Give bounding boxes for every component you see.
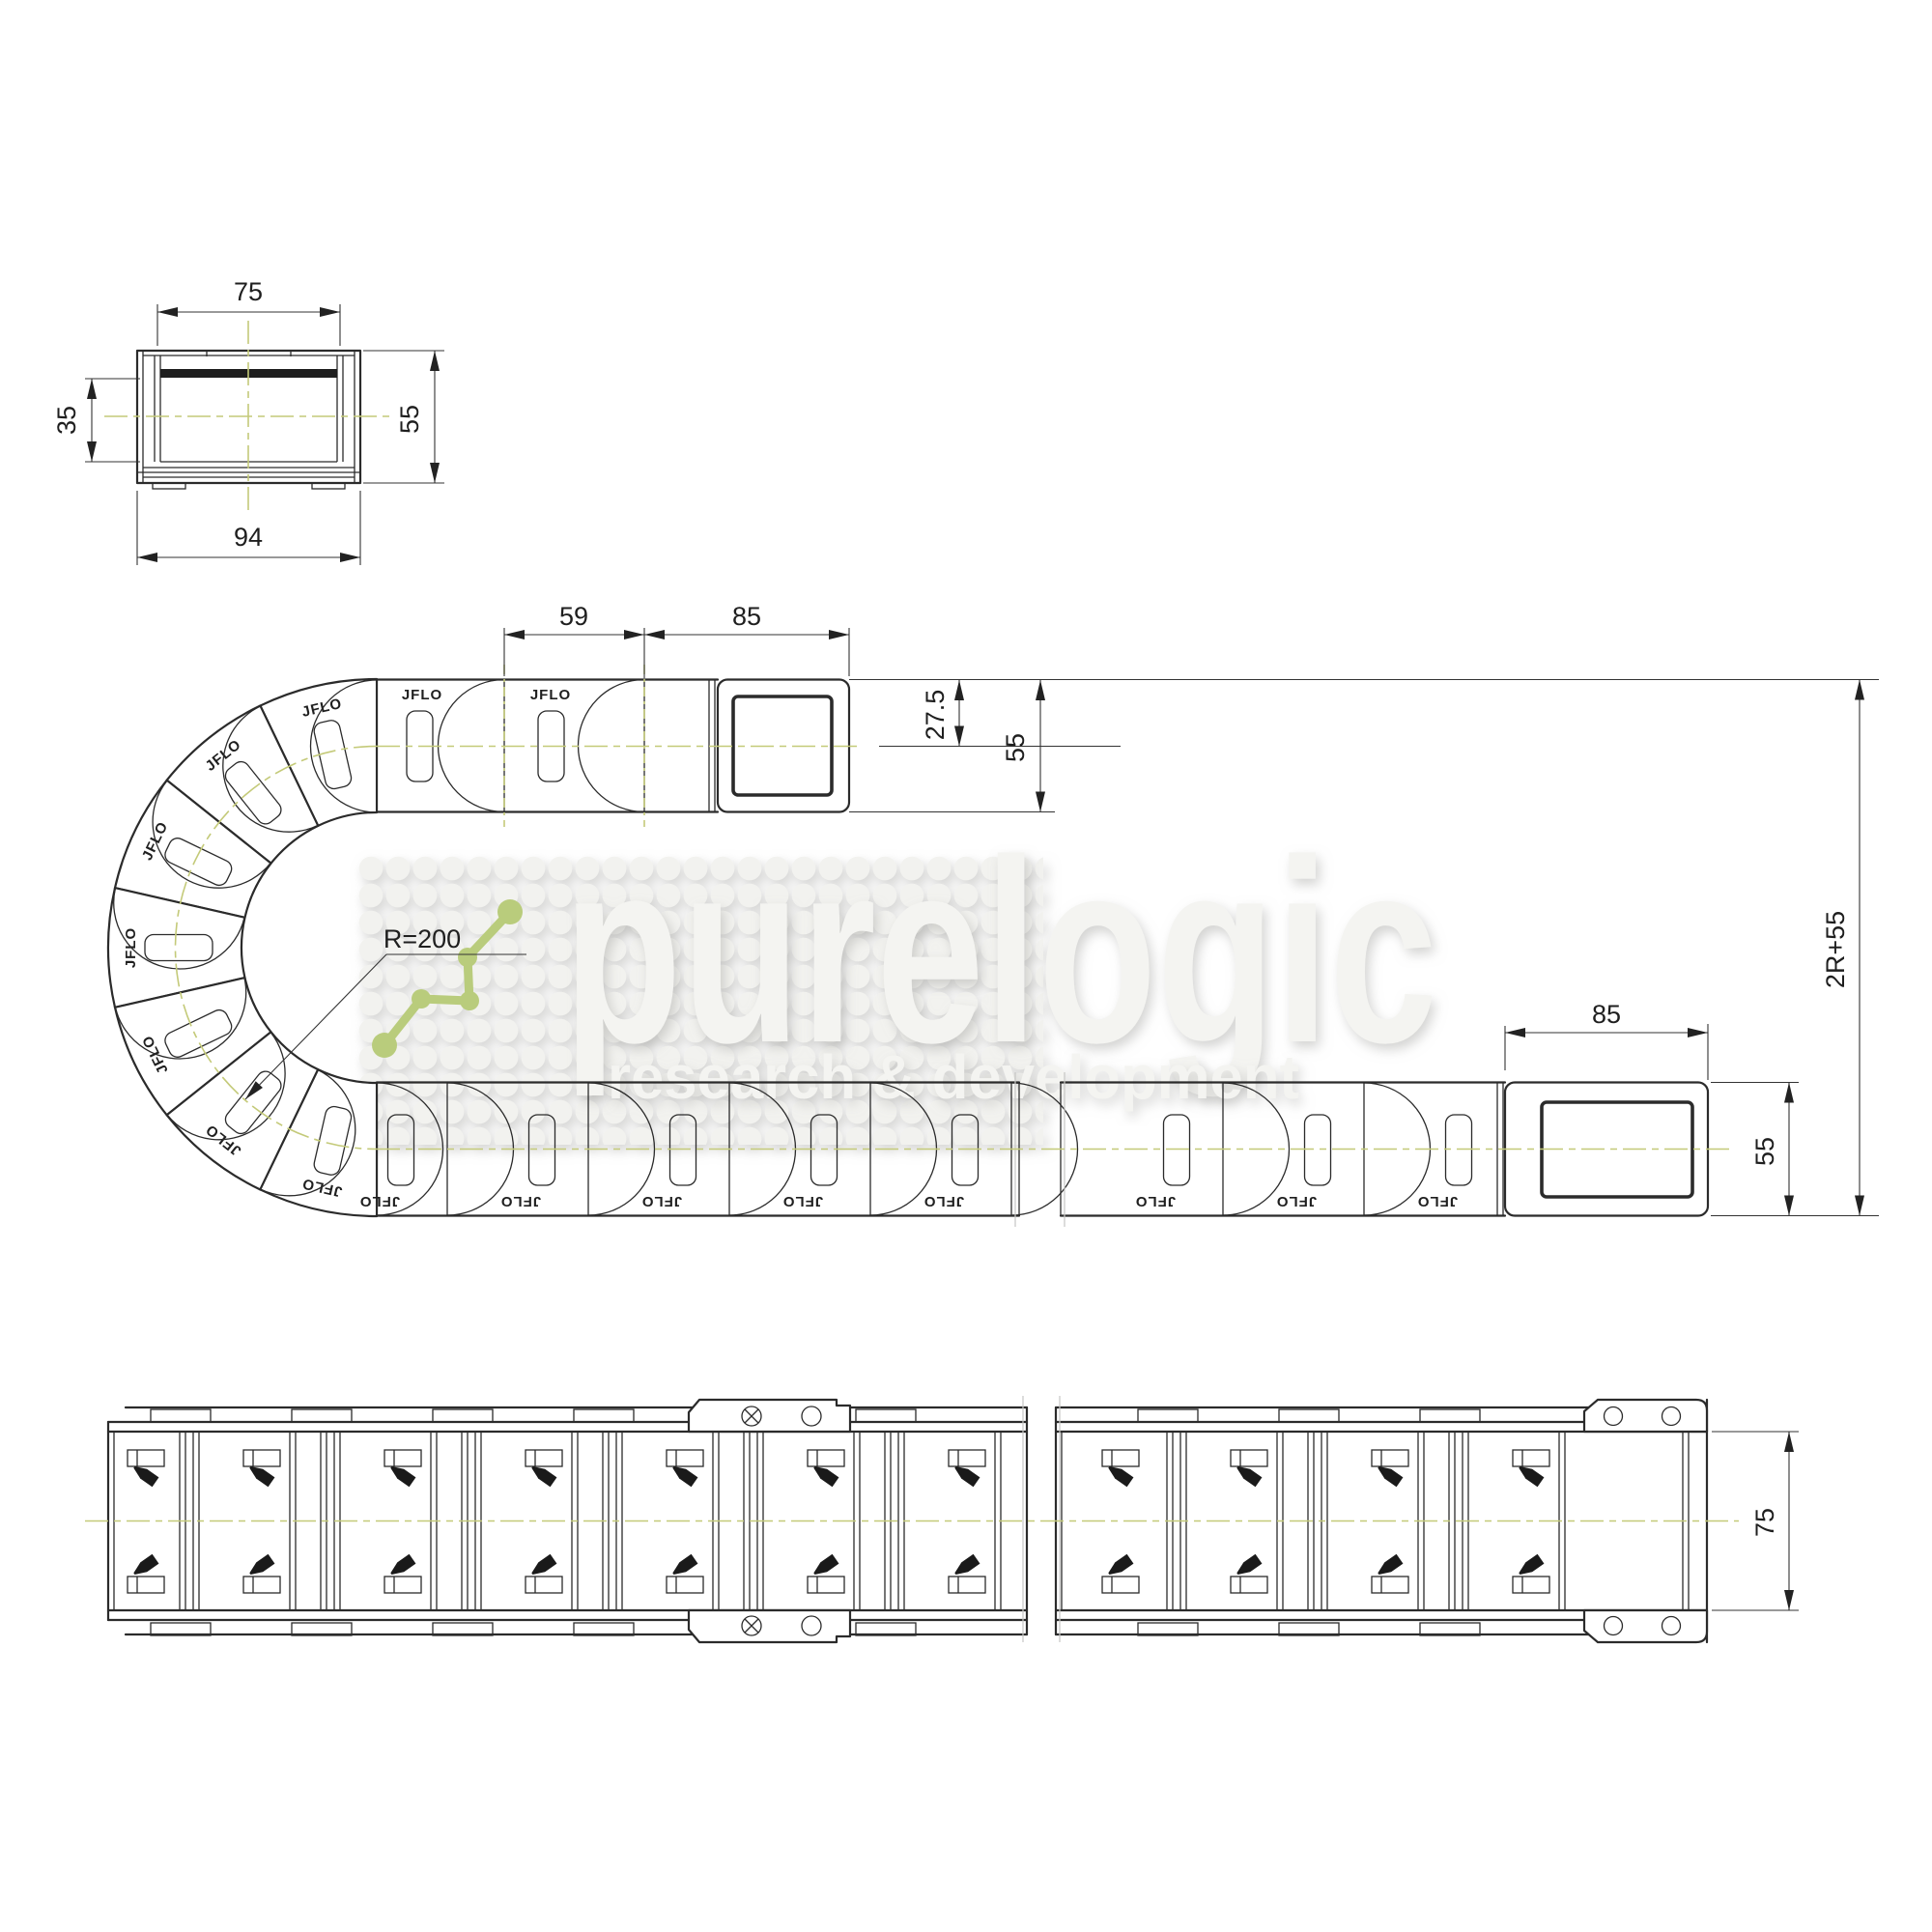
dim-vertical-span: 2R+55	[1821, 911, 1850, 988]
view-cross-section: 75 35 55 94	[52, 277, 444, 565]
dim-inner-width: 75	[234, 277, 263, 306]
dim-inner-height: 35	[52, 406, 81, 435]
brand-text: JFLO	[1276, 1193, 1317, 1209]
dim-fixed-end-height: 55	[1750, 1137, 1779, 1166]
dim-fixed-bracket-length: 85	[1592, 1000, 1621, 1029]
dim-bend-radius: R=200	[384, 924, 461, 953]
dim-chain-width: 75	[1750, 1508, 1779, 1537]
brand-text: JFLO	[923, 1193, 964, 1209]
brand-text: JFLO	[641, 1193, 682, 1209]
brand-text: JFLO	[530, 687, 571, 703]
dim-moving-bracket-length: 85	[732, 602, 761, 631]
brand-text: JFLO	[359, 1193, 400, 1209]
cad-drawing: JFLO purelogic research & development	[0, 0, 1932, 1932]
view-plan: 75	[85, 1396, 1799, 1642]
brand-text: JFLO	[402, 687, 442, 703]
brand-text: JFLO	[500, 1193, 541, 1209]
dim-center-offset: 27.5	[921, 690, 950, 741]
brand-text: JFLO	[782, 1193, 823, 1209]
brand-text: JFLO	[1417, 1193, 1458, 1209]
brand-text: JFLO	[1135, 1193, 1176, 1209]
break-lines	[1023, 1396, 1060, 1642]
drawing-page: JFLO purelogic research & development	[0, 0, 1932, 1932]
watermark: purelogic research & development	[357, 807, 1437, 1145]
dim-outer-width: 94	[234, 523, 263, 552]
watermark-tagline: research & development	[608, 1042, 1299, 1112]
dim-link-pitch: 59	[559, 602, 588, 631]
dim-outer-height: 55	[395, 405, 424, 434]
dim-chain-height: 55	[1001, 733, 1030, 762]
